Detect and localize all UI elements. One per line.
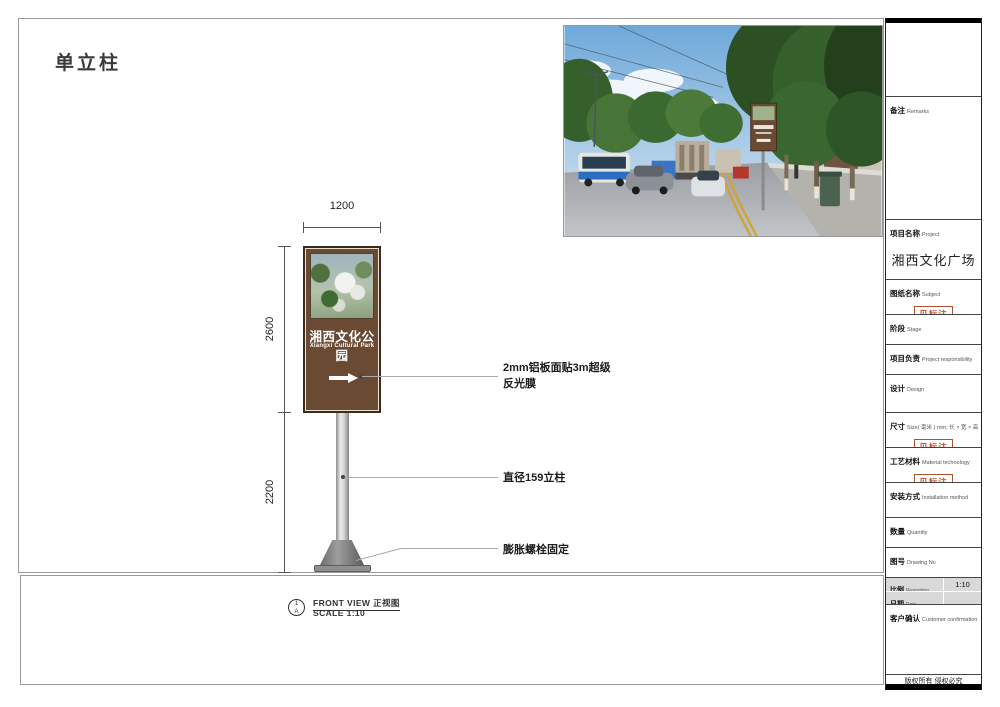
dim-width-tick-left (303, 222, 304, 233)
photo-pedestrian (794, 165, 798, 179)
photo-bus (578, 153, 630, 187)
site-photo-illustration (564, 26, 882, 236)
field-size: 尺寸Size( 毫米 ) mm; 长 × 宽 × 高 见标注 (886, 413, 981, 448)
leader-line-panel (362, 376, 498, 377)
date-value (943, 592, 981, 604)
field-design: 设计Design (886, 375, 981, 413)
field-project: 项目名称Project 湘西文化广场 (886, 220, 981, 280)
dim-height-line (284, 246, 285, 573)
dim-lower-label: 2200 (264, 462, 276, 522)
dim-height-tick-mid (278, 412, 291, 413)
proportion-value: 1:10 (943, 578, 981, 591)
field-responsibility: 项目负责Project responsibility (886, 345, 981, 375)
footer-frame (20, 575, 884, 685)
field-subject: 图纸名称Subject 见标注 (886, 280, 981, 315)
sign-arrow-icon (329, 373, 359, 383)
page-title: 单立柱 (55, 48, 121, 75)
dim-height-tick-bottom (278, 572, 291, 573)
field-date: 日期Date (886, 592, 981, 605)
site-photo (563, 25, 883, 237)
field-stage: 阶段Stage (886, 315, 981, 345)
leader-line-pole (345, 477, 498, 478)
field-proportion: 比例Proportion 1:10 (886, 578, 981, 592)
leader-line-base (400, 548, 498, 549)
field-customer-confirmation: 客户确认Customer confirmation (886, 605, 981, 675)
annotation-base: 膨胀螺栓固定 (503, 542, 569, 558)
field-material: 工艺材料Material technology 见标注 (886, 448, 981, 483)
logo-box (886, 23, 981, 97)
annotation-panel-material: 2mm铝板面贴3m超级 反光膜 (503, 360, 611, 392)
sign-panel: 湘西文化公园 Xiangxi Cultural Park (303, 246, 381, 413)
title-block: 备注Remarks 项目名称Project 湘西文化广场 图纸名称Subject… (885, 18, 982, 690)
material-stamp: 见标注 (914, 474, 953, 483)
dim-width-tick-right (380, 222, 381, 233)
subject-stamp: 见标注 (914, 306, 953, 315)
dim-upper-label: 2600 (264, 299, 276, 359)
field-remarks: 备注Remarks (886, 97, 981, 220)
field-drawing-no: 图号Drawing No (886, 548, 981, 578)
field-quantity: 数量Quantity (886, 518, 981, 548)
sign-panel-subtitle: Xiangxi Cultural Park (305, 343, 379, 349)
view-marker-letter: A (294, 608, 298, 616)
dim-width-label: 1200 (303, 200, 381, 212)
view-marker-number: 1 (295, 600, 298, 608)
sign-panel-image (310, 253, 374, 319)
view-scale: SCALE 1:10 (313, 608, 365, 618)
project-name-value: 湘西文化广场 (890, 250, 977, 269)
copyright-notice: 版权所有 侵权必究 (886, 675, 981, 684)
view-marker: 1 A (288, 599, 305, 616)
photo-trash-bin (818, 172, 842, 207)
pole-base-plate (314, 565, 371, 572)
size-stamp: 见标注 (914, 439, 953, 448)
title-block-bottom-bar (886, 684, 981, 690)
annotation-pole: 直径159立柱 (503, 470, 565, 486)
drawing-sheet: 单立柱 (0, 0, 1000, 707)
dim-height-tick-top (278, 246, 291, 247)
dim-width-line (303, 227, 381, 228)
field-installation: 安装方式Installation method (886, 483, 981, 518)
